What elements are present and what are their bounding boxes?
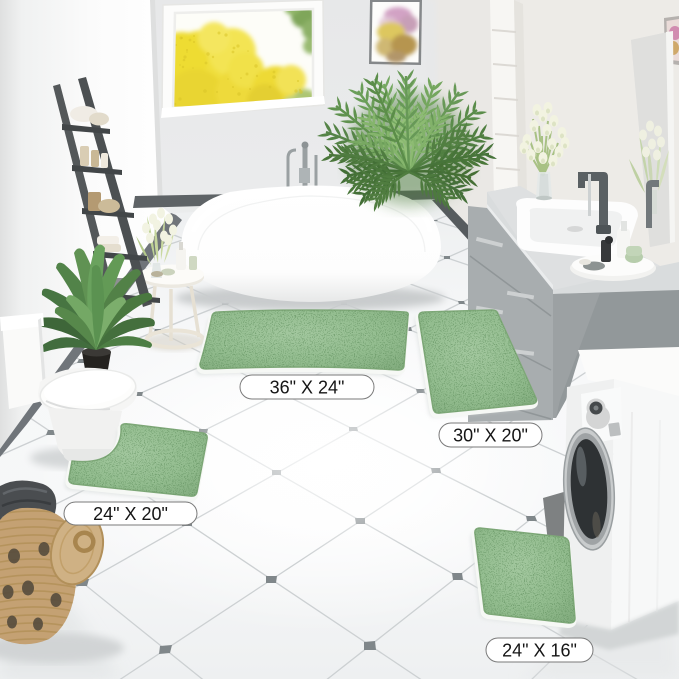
svg-text:36" X 24": 36" X 24" xyxy=(270,377,345,397)
svg-text:30" X 20": 30" X 20" xyxy=(453,425,528,445)
svg-text:24" X 16": 24" X 16" xyxy=(502,640,577,660)
svg-text:24" X 20": 24" X 20" xyxy=(93,504,168,524)
